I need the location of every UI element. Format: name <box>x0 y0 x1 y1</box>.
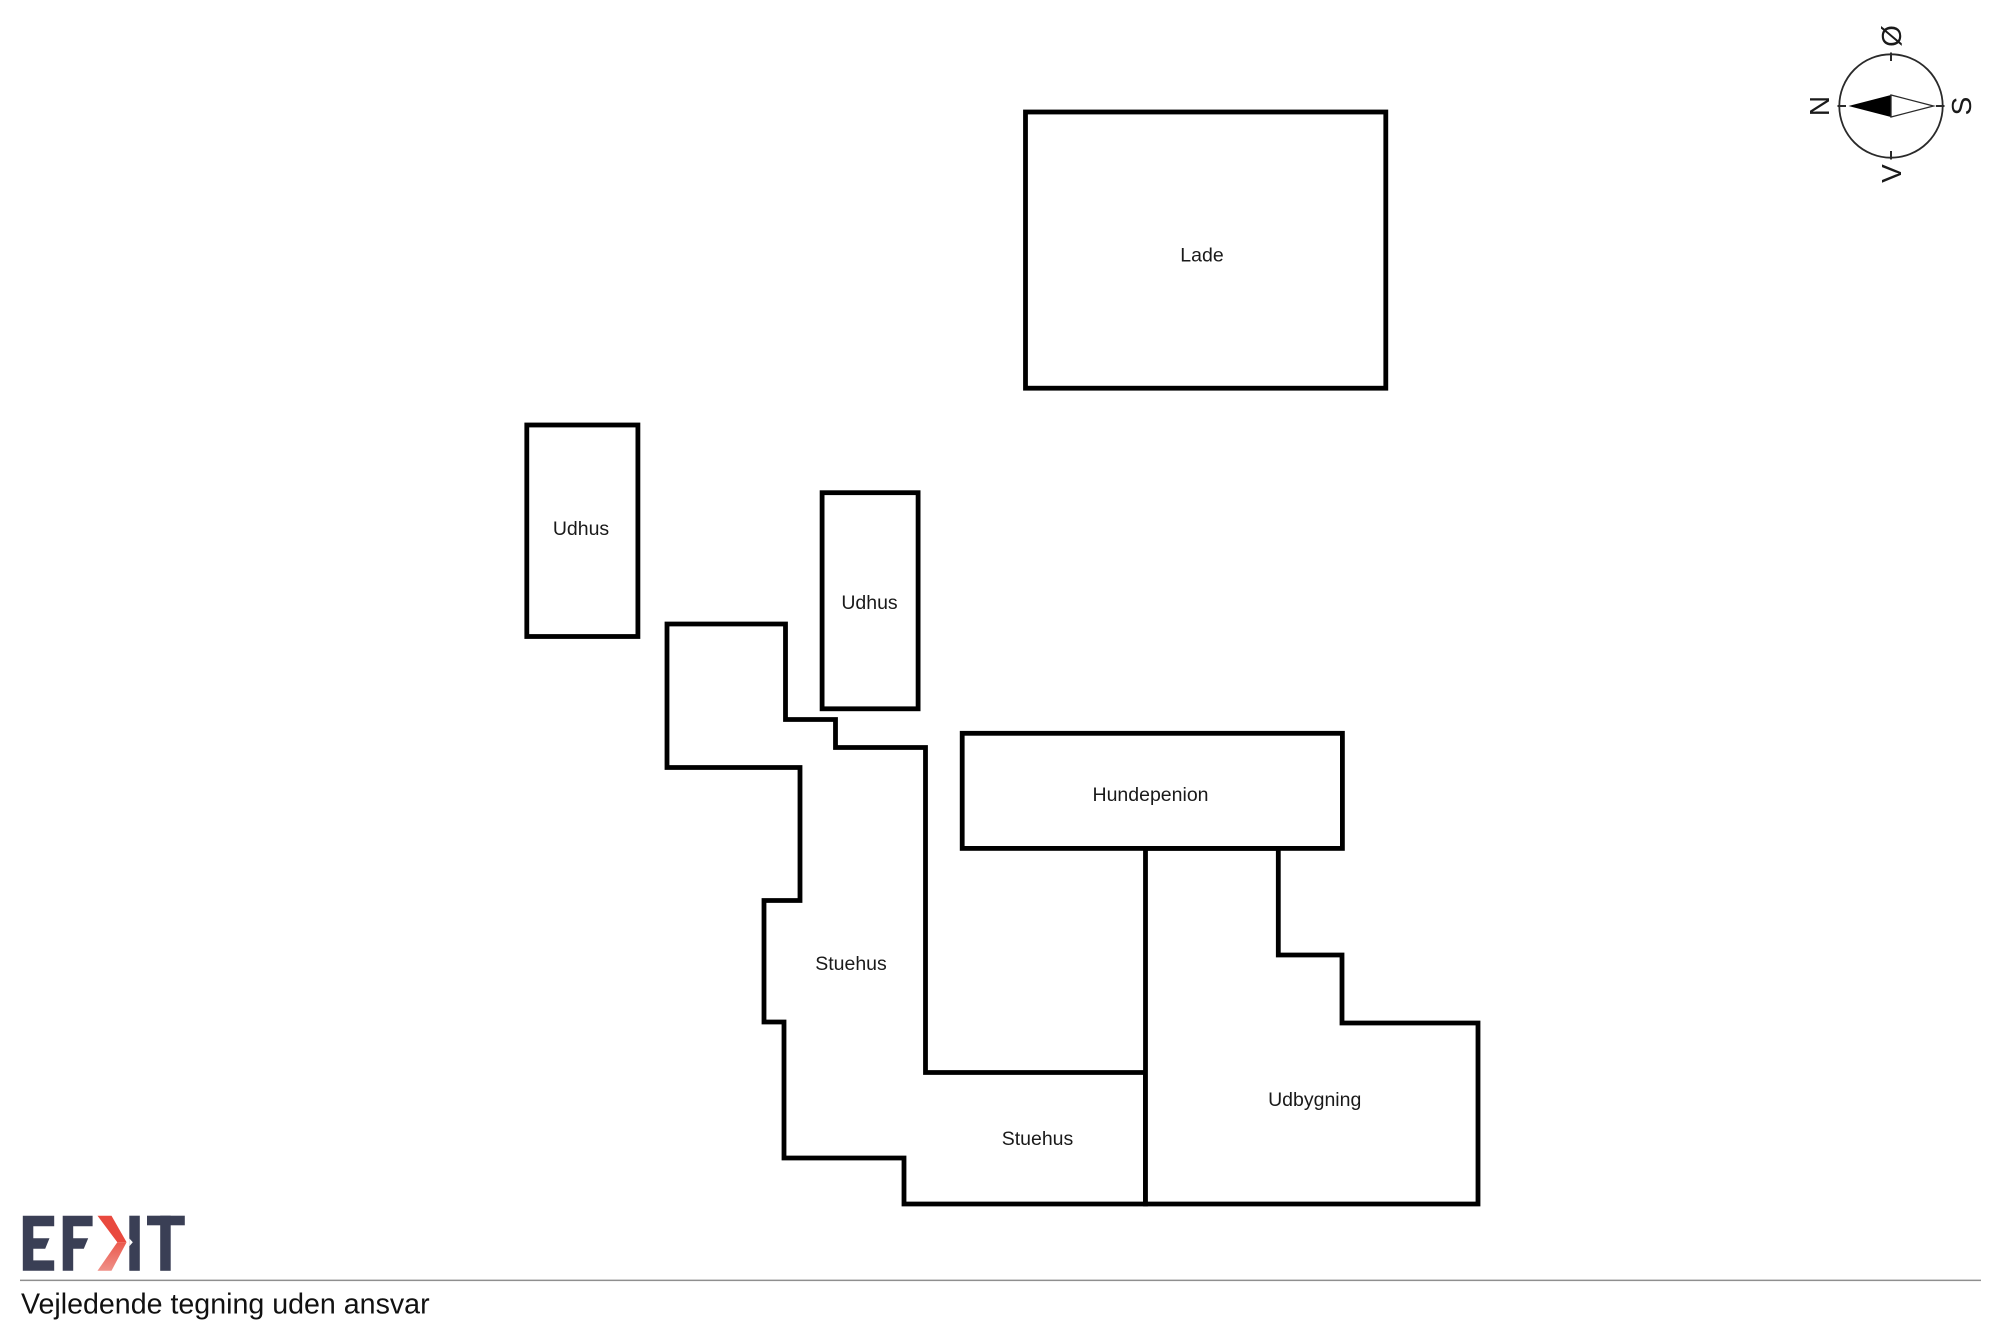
svg-text:Stuehus: Stuehus <box>1002 1128 1074 1150</box>
svg-text:Udbygning: Udbygning <box>1268 1089 1361 1111</box>
svg-text:S: S <box>1946 97 1977 116</box>
svg-text:Lade: Lade <box>1180 245 1223 267</box>
svg-text:Stuehus: Stuehus <box>815 953 887 975</box>
svg-text:Udhus: Udhus <box>553 518 610 540</box>
svg-text:Hundepenion: Hundepenion <box>1092 784 1208 806</box>
svg-text:Udhus: Udhus <box>841 592 898 614</box>
svg-text:N: N <box>1804 96 1835 116</box>
svg-text:Vejledende tegning uden ansvar: Vejledende tegning uden ansvar <box>21 1289 430 1321</box>
svg-text:V: V <box>1876 164 1907 183</box>
svg-text:Ø: Ø <box>1876 25 1907 47</box>
